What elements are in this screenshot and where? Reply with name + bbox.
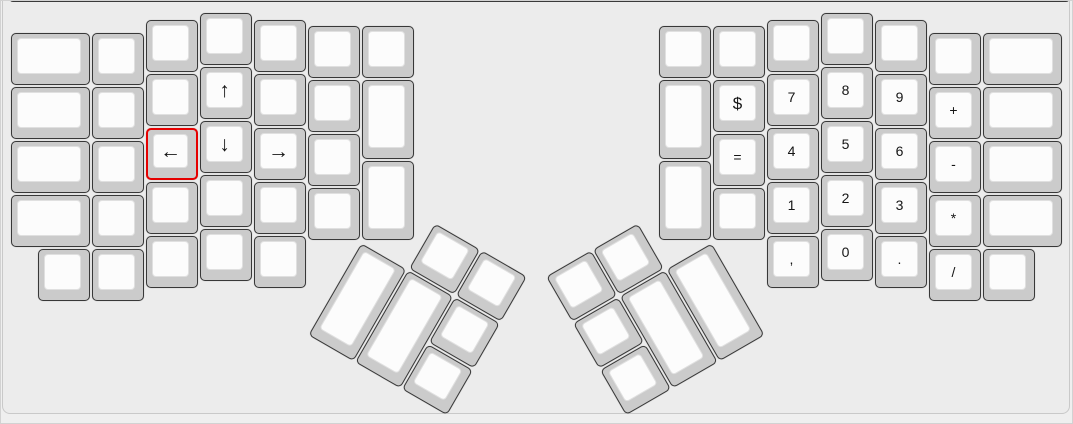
key-blank[interactable] (146, 182, 198, 234)
keytop (608, 352, 658, 402)
key-blank[interactable] (11, 195, 90, 247)
key-down-arrow[interactable]: ↓ (200, 121, 252, 173)
key-blank[interactable] (11, 141, 90, 193)
key-label: 1 (788, 198, 796, 212)
key-label: 8 (842, 83, 850, 97)
key-blank[interactable] (92, 33, 144, 85)
key-label: 6 (896, 144, 904, 158)
screenshot-stage: ←↑↓→$=741,8520963.+-*/ (0, 0, 1073, 424)
keytop (719, 31, 756, 67)
key-blank[interactable] (200, 175, 252, 227)
key-label: ↑ (219, 80, 230, 101)
keytop: ← (153, 134, 188, 168)
keytop (17, 200, 81, 236)
keytop (989, 92, 1053, 128)
keytop (152, 79, 189, 115)
key-label: = (733, 150, 741, 164)
key-blank[interactable] (146, 20, 198, 72)
key-asterisk[interactable]: * (929, 195, 981, 247)
keytop: 6 (881, 133, 918, 169)
key-left-arrow[interactable]: ← (146, 128, 198, 180)
toolbar-bottom-edge (9, 0, 1070, 2)
keytop (314, 31, 351, 67)
key-plus[interactable]: + (929, 87, 981, 139)
keytop (601, 232, 651, 282)
key-blank[interactable] (362, 26, 414, 78)
key-minus[interactable]: - (929, 141, 981, 193)
key-blank[interactable] (767, 20, 819, 72)
key-blank[interactable] (983, 87, 1062, 139)
key-blank[interactable] (308, 134, 360, 186)
keytop: , (773, 241, 810, 277)
keytop (98, 92, 135, 128)
key-label: , (790, 252, 794, 266)
key-digit-4[interactable]: 4 (767, 128, 819, 180)
key-blank[interactable] (659, 161, 711, 240)
key-label: / (952, 265, 956, 279)
keytop (368, 85, 405, 148)
keytop (260, 241, 297, 277)
keytop: - (935, 146, 972, 182)
key-label: ↓ (219, 134, 230, 155)
key-digit-9[interactable]: 9 (875, 74, 927, 126)
keytop (881, 25, 918, 61)
keytop (368, 166, 405, 229)
key-label: 9 (896, 90, 904, 104)
keytop (260, 79, 297, 115)
keytop (98, 38, 135, 74)
key-blank[interactable] (200, 13, 252, 65)
keytop (665, 166, 702, 229)
keytop (989, 200, 1053, 236)
keytop: 2 (827, 180, 864, 216)
keytop (44, 254, 81, 290)
key-digit-2[interactable]: 2 (821, 175, 873, 227)
key-blank[interactable] (929, 33, 981, 85)
key-blank[interactable] (362, 161, 414, 240)
key-blank[interactable] (254, 182, 306, 234)
keytop (935, 38, 972, 74)
key-digit-1[interactable]: 1 (767, 182, 819, 234)
key-blank[interactable] (92, 87, 144, 139)
key-blank[interactable] (146, 236, 198, 288)
key-blank[interactable] (713, 26, 765, 78)
keytop: 1 (773, 187, 810, 223)
key-blank[interactable] (146, 74, 198, 126)
key-digit-3[interactable]: 3 (875, 182, 927, 234)
keytop (17, 38, 81, 74)
keytop (260, 25, 297, 61)
keytop: ↓ (206, 126, 243, 162)
key-label: * (951, 211, 956, 225)
key-right-arrow[interactable]: → (254, 128, 306, 180)
key-blank[interactable] (308, 188, 360, 240)
keytop (314, 193, 351, 229)
key-blank[interactable] (254, 236, 306, 288)
key-slash[interactable]: / (929, 249, 981, 301)
key-blank[interactable] (38, 249, 90, 301)
keytop (206, 234, 243, 270)
key-digit-0[interactable]: 0 (821, 229, 873, 281)
keytop (989, 254, 1026, 290)
keytop (98, 146, 135, 182)
key-label: ← (160, 141, 181, 162)
keytop (719, 193, 756, 229)
key-blank[interactable] (200, 229, 252, 281)
key-blank[interactable] (875, 20, 927, 72)
key-label: 3 (896, 198, 904, 212)
key-digit-7[interactable]: 7 (767, 74, 819, 126)
key-label: + (949, 103, 957, 117)
keytop: $ (719, 85, 756, 121)
keytop (368, 31, 405, 67)
keytop (314, 139, 351, 175)
keytop: 9 (881, 79, 918, 115)
keytop: ↑ (206, 72, 243, 108)
key-label: 5 (842, 137, 850, 151)
keytop (152, 241, 189, 277)
key-blank[interactable] (11, 33, 90, 85)
keytop: . (881, 241, 918, 277)
keytop: → (260, 133, 297, 169)
key-blank[interactable] (362, 80, 414, 159)
key-dollar[interactable]: $ (713, 80, 765, 132)
keytop (98, 200, 135, 236)
key-blank[interactable] (659, 80, 711, 159)
key-blank[interactable] (821, 13, 873, 65)
key-blank[interactable] (308, 26, 360, 78)
key-blank[interactable] (983, 33, 1062, 85)
key-label: → (268, 141, 289, 162)
keytop (581, 306, 631, 356)
key-label: 2 (842, 191, 850, 205)
key-blank[interactable] (983, 195, 1062, 247)
key-equals[interactable]: = (713, 134, 765, 186)
keytop: 5 (827, 126, 864, 162)
key-digit-5[interactable]: 5 (821, 121, 873, 173)
keytop (17, 92, 81, 128)
keytop (827, 18, 864, 54)
key-period[interactable]: . (875, 236, 927, 288)
keytop (773, 25, 810, 61)
keytop: 3 (881, 187, 918, 223)
keytop (206, 18, 243, 54)
keytop (989, 38, 1053, 74)
key-blank[interactable] (983, 141, 1062, 193)
key-label: 0 (842, 245, 850, 259)
key-blank[interactable] (11, 87, 90, 139)
keytop: / (935, 254, 972, 290)
keytop: 0 (827, 234, 864, 270)
keytop (206, 180, 243, 216)
key-label: $ (733, 95, 742, 112)
keytop (260, 187, 297, 223)
key-blank[interactable] (713, 188, 765, 240)
keytop (554, 259, 604, 309)
key-label: - (951, 157, 956, 171)
keytop: * (935, 200, 972, 236)
keytop: 7 (773, 79, 810, 115)
key-comma[interactable]: , (767, 236, 819, 288)
key-digit-6[interactable]: 6 (875, 128, 927, 180)
keytop (98, 254, 135, 290)
key-blank[interactable] (254, 74, 306, 126)
keytop: + (935, 92, 972, 128)
key-blank[interactable] (308, 80, 360, 132)
key-blank[interactable] (254, 20, 306, 72)
key-blank[interactable] (92, 195, 144, 247)
keytop: 8 (827, 72, 864, 108)
keytop (314, 85, 351, 121)
keytop (152, 187, 189, 223)
key-blank[interactable] (659, 26, 711, 78)
key-digit-8[interactable]: 8 (821, 67, 873, 119)
keytop (989, 146, 1053, 182)
keytop (152, 25, 189, 61)
keytop (665, 85, 702, 148)
key-label: 7 (788, 90, 796, 104)
key-label: . (898, 252, 902, 266)
keytop (665, 31, 702, 67)
key-blank[interactable] (92, 249, 144, 301)
key-blank[interactable] (983, 249, 1035, 301)
keytop (17, 146, 81, 182)
keytop: = (719, 139, 756, 175)
keytop: 4 (773, 133, 810, 169)
key-blank[interactable] (92, 141, 144, 193)
key-label: 4 (788, 144, 796, 158)
key-up-arrow[interactable]: ↑ (200, 67, 252, 119)
